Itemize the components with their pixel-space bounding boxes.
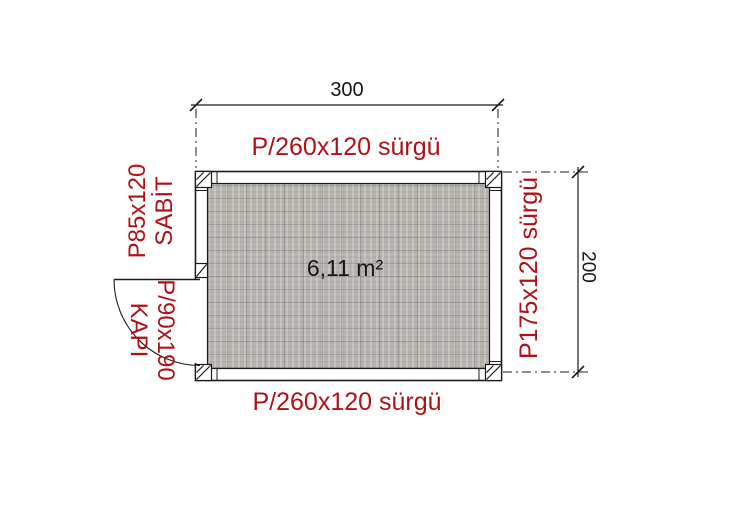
corner-post-bottom-right [486, 365, 502, 381]
corner-post-top-right [486, 172, 502, 188]
corner-post-top-left [196, 172, 212, 188]
floor-plan-drawing: 300 200 P/260x120 sürgü P/260x120 sürgü … [0, 0, 752, 522]
door-jamb-post [196, 264, 208, 278]
top-window-label: P/260x120 sürgü [251, 133, 440, 161]
door-label-line1: P/90x190 [151, 279, 178, 380]
bottom-window-label: P/260x120 sürgü [252, 388, 441, 416]
left-window-label-line2: SABİT [152, 164, 179, 259]
dimension-width-label: 300 [330, 79, 363, 101]
area-label: 6,11 m² [307, 256, 383, 282]
left-window-label-line1: P85x120 [125, 164, 152, 259]
corner-post-bottom-left [196, 365, 212, 381]
door-label: P/90x190 KAPI [124, 279, 178, 380]
left-window-label: P85x120 SABİT [125, 164, 179, 259]
door-opening [193, 280, 207, 363]
door-label-line2: KAPI [124, 279, 151, 380]
dimension-height-label: 200 [577, 251, 598, 283]
right-window-label: P175x120 sürgü [515, 177, 543, 359]
